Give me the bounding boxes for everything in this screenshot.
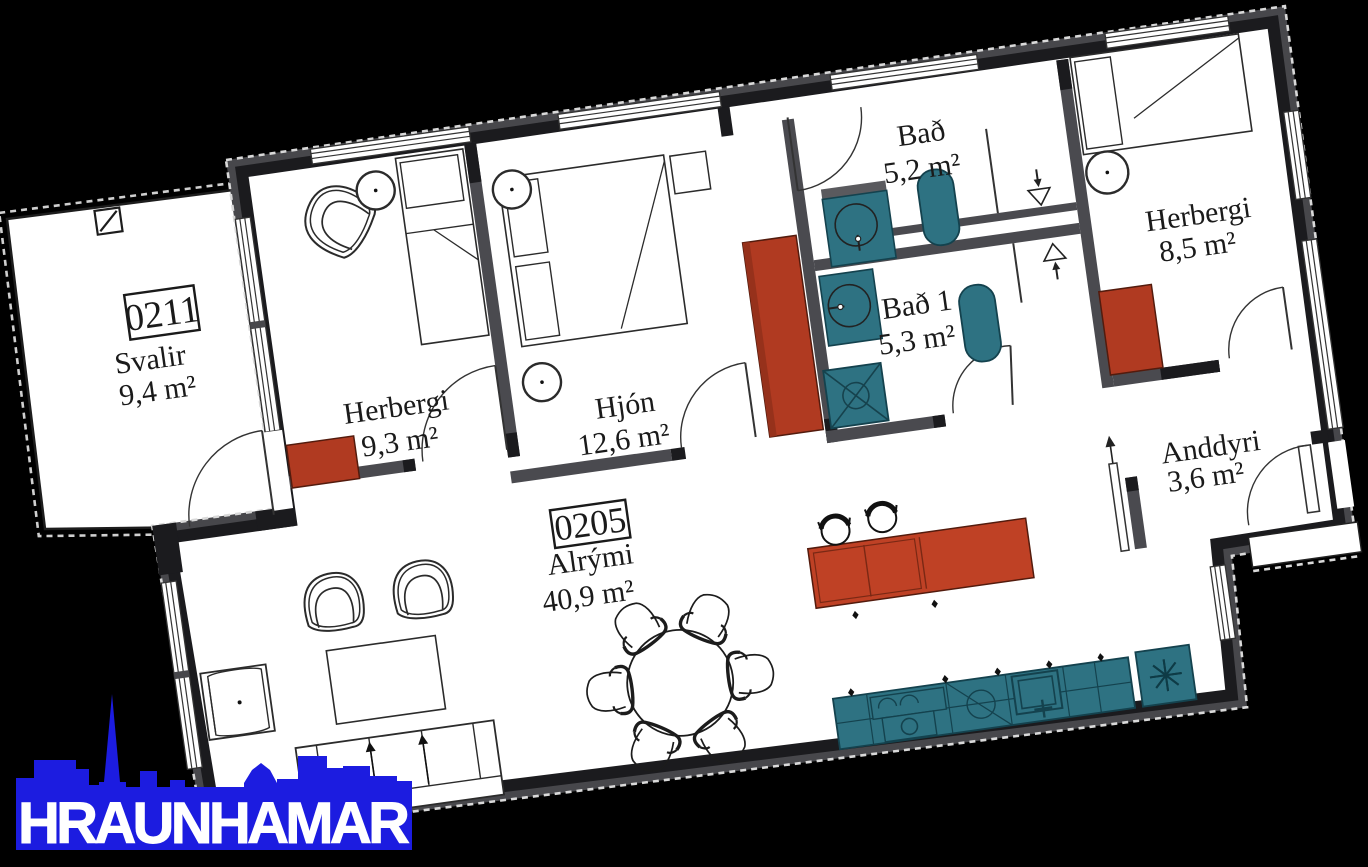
- svg-text:HRAUNHAMAR: HRAUNHAMAR: [18, 791, 410, 856]
- svg-text:Bað: Bað: [895, 114, 947, 153]
